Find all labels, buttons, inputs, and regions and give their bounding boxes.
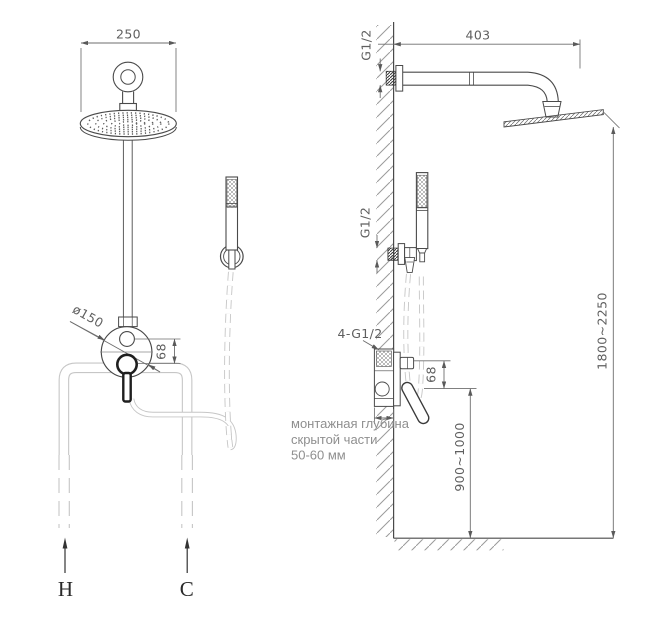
ceiling-flange — [113, 62, 143, 92]
dim-1800-2250-label: 1800~2250 — [595, 292, 610, 370]
technical-drawing-page: 250 — [0, 0, 650, 640]
wall-hatching — [376, 25, 393, 537]
hot-label: H — [58, 577, 73, 601]
escutcheon-plate — [394, 352, 401, 406]
ball-joint — [543, 102, 561, 118]
note-line-2: скрытой части — [291, 432, 377, 447]
cold-label: C — [180, 577, 194, 601]
cartridge-circle — [375, 382, 389, 396]
floor-hatching — [395, 539, 504, 550]
note-line-3: 50-60 мм — [291, 448, 346, 463]
lever-handle-front — [123, 373, 130, 402]
arm-thread-label: G1/2 — [359, 29, 374, 60]
handshower-thread-label: G1/2 — [358, 207, 373, 238]
note-line-1: монтажная глубина — [291, 416, 410, 431]
dim-900-1000-label: 900~1000 — [452, 422, 467, 491]
dim-68-side-label: 68 — [424, 366, 439, 383]
lever-base-front — [117, 355, 136, 374]
diverter-knob-side — [400, 357, 413, 368]
dim-68-front-label: 68 — [154, 343, 169, 360]
valve-threads-label: 4-G1/2 — [338, 326, 383, 341]
dim-403-label: 403 — [465, 28, 490, 43]
diverter-button-front — [120, 332, 135, 347]
shower-system-installation-diagram: 250 — [0, 0, 650, 640]
dim-250-label: 250 — [116, 27, 141, 42]
